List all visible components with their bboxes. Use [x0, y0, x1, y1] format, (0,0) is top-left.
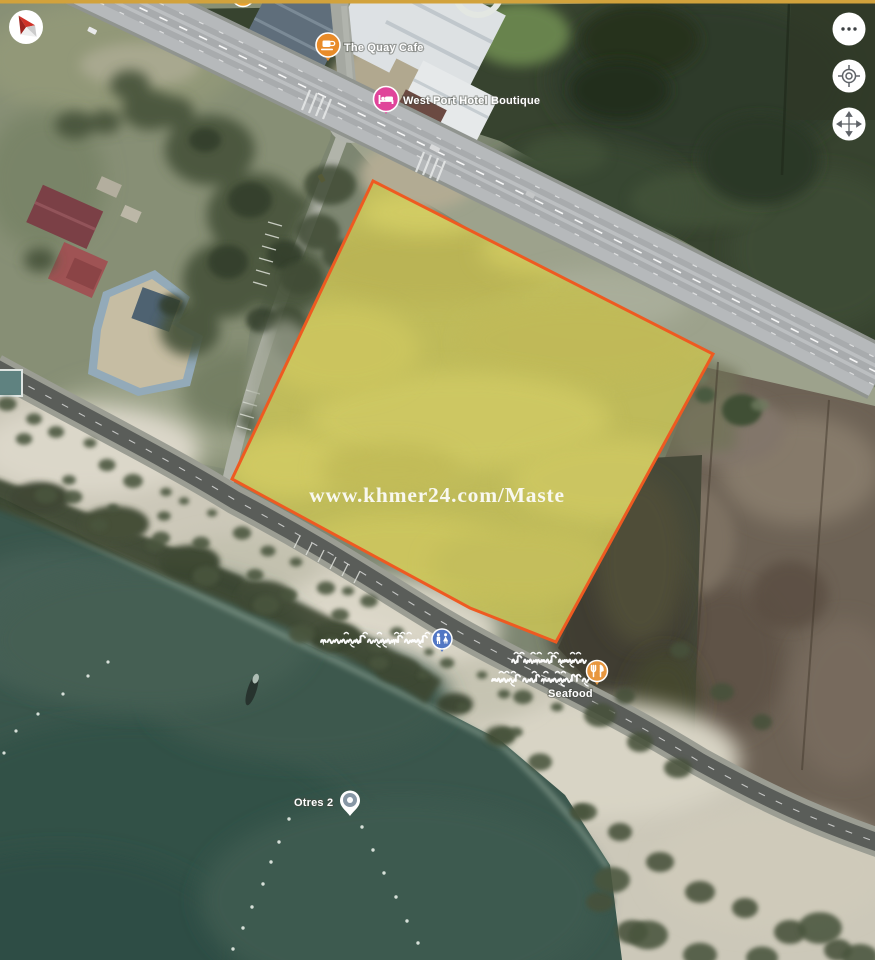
- svg-text:West Port Hotel Boutique: West Port Hotel Boutique: [403, 95, 540, 107]
- svg-text:The Quay Cafe: The Quay Cafe: [344, 42, 424, 54]
- svg-text:Seafood: Seafood: [548, 688, 593, 700]
- svg-text:Otres 2: Otres 2: [294, 797, 333, 809]
- svg-text:www.khmer24.com/Maste: www.khmer24.com/Maste: [309, 483, 565, 507]
